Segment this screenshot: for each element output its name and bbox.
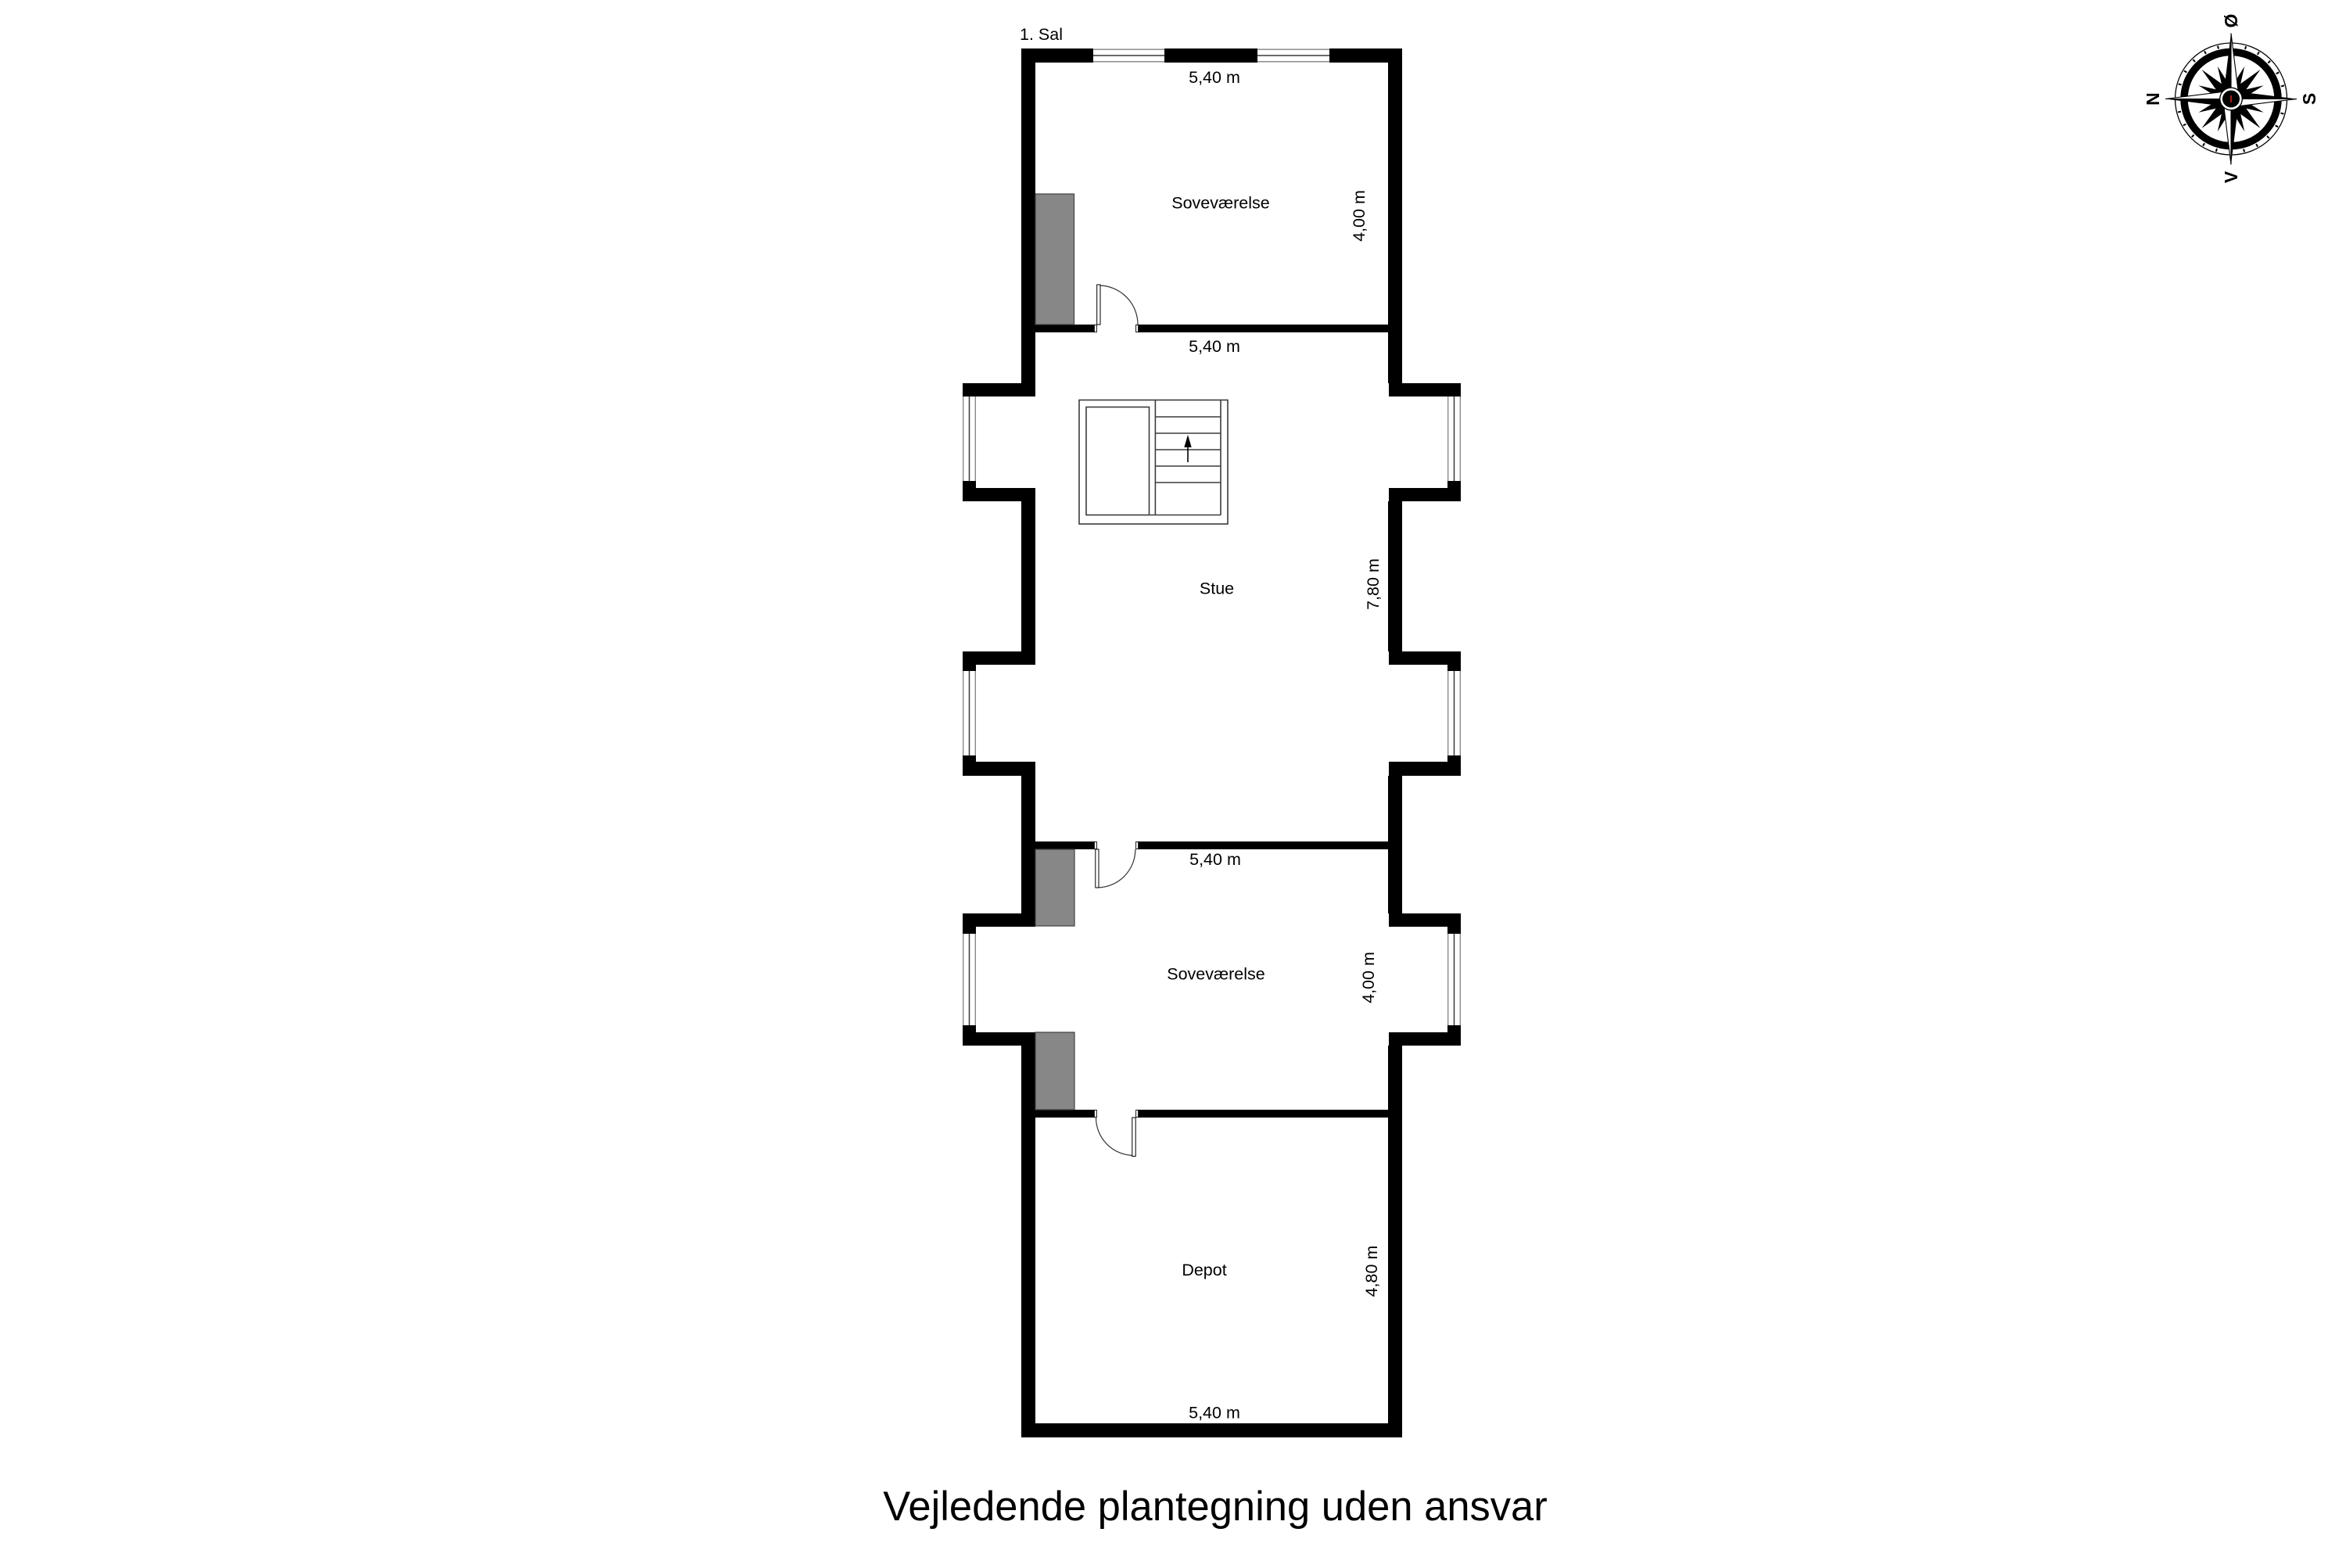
svg-text:5,40 m: 5,40 m [1189, 68, 1240, 87]
svg-text:7,80 m: 7,80 m [1364, 558, 1383, 610]
svg-text:5,40 m: 5,40 m [1189, 337, 1240, 356]
svg-text:Soveværelse: Soveværelse [1171, 194, 1269, 213]
svg-text:5,40 m: 5,40 m [1189, 850, 1241, 869]
svg-text:Depot: Depot [1182, 1261, 1226, 1279]
svg-text:Vejledende plantegning uden an: Vejledende plantegning uden ansvar [883, 1484, 1547, 1530]
svg-text:4,80 m: 4,80 m [1362, 1246, 1381, 1297]
svg-text:S: S [2299, 93, 2319, 105]
svg-text:5,40 m: 5,40 m [1189, 1404, 1240, 1423]
svg-text:Soveværelse: Soveværelse [1167, 965, 1264, 984]
svg-text:4,00 m: 4,00 m [1359, 952, 1378, 1003]
svg-text:Stue: Stue [1200, 579, 1234, 598]
svg-text:1. Sal: 1. Sal [1020, 25, 1063, 44]
svg-text:Ø: Ø [2221, 14, 2241, 28]
svg-text:V: V [2221, 170, 2241, 183]
svg-text:N: N [2143, 92, 2163, 106]
svg-text:4,00 m: 4,00 m [1350, 190, 1368, 242]
